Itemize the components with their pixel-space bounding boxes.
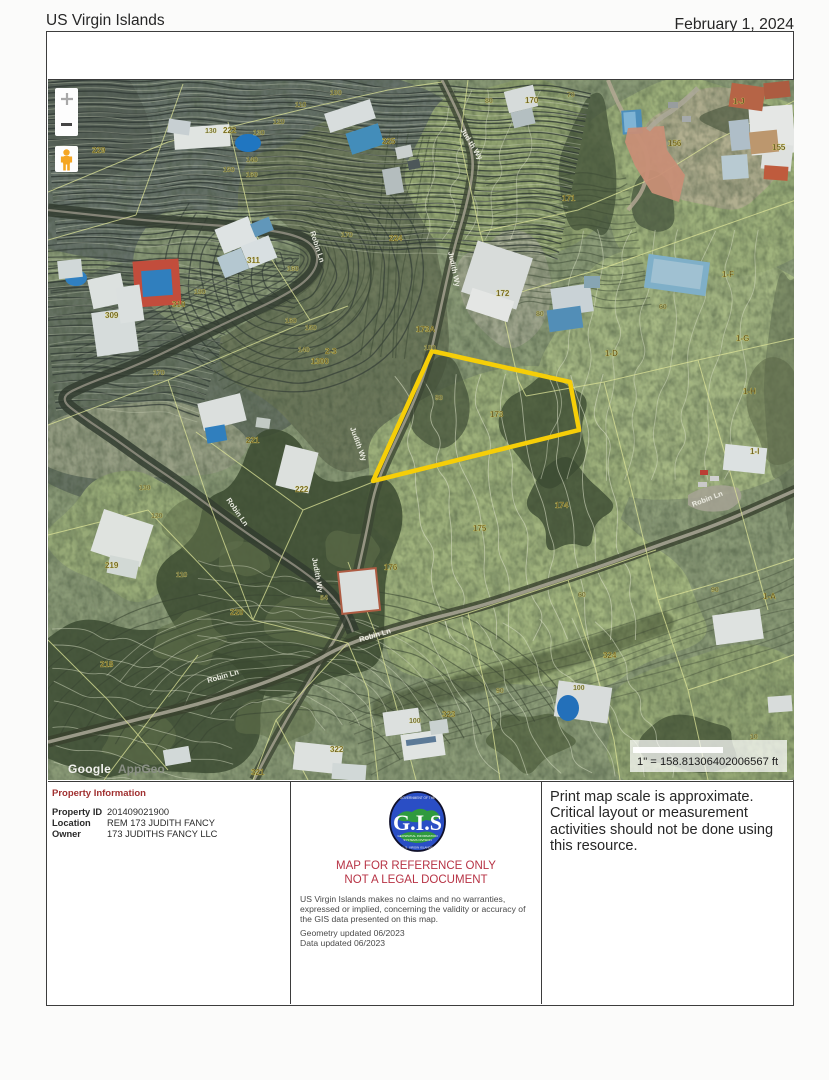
svg-text:172: 172 bbox=[496, 289, 510, 298]
svg-text:1-A: 1-A bbox=[763, 592, 776, 601]
svg-text:225: 225 bbox=[382, 137, 396, 146]
svg-text:173A: 173A bbox=[416, 325, 435, 334]
svg-text:321: 321 bbox=[251, 768, 265, 777]
svg-text:1-H: 1-H bbox=[743, 387, 756, 396]
svg-text:1-J: 1-J bbox=[733, 97, 745, 106]
svg-text:1-F: 1-F bbox=[722, 270, 734, 279]
svg-text:218: 218 bbox=[100, 660, 114, 669]
svg-text:1-D: 1-D bbox=[605, 349, 618, 358]
svg-text:G.I.S: G.I.S bbox=[393, 810, 442, 835]
svg-text:155: 155 bbox=[772, 143, 786, 152]
svg-text:130: 130 bbox=[205, 128, 217, 135]
svg-text:2-3: 2-3 bbox=[325, 347, 337, 356]
svg-text:323: 323 bbox=[442, 710, 456, 719]
svg-text:220: 220 bbox=[230, 608, 244, 617]
svg-text:140: 140 bbox=[246, 157, 258, 164]
svg-text:70: 70 bbox=[567, 92, 575, 99]
svg-text:64: 64 bbox=[320, 595, 328, 602]
svg-text:219: 219 bbox=[105, 561, 119, 570]
svg-text:229: 229 bbox=[92, 146, 106, 155]
svg-text:1-G: 1-G bbox=[736, 334, 749, 343]
svg-text:60: 60 bbox=[659, 304, 667, 311]
svg-text:100: 100 bbox=[330, 90, 342, 97]
svg-text:100: 100 bbox=[573, 685, 585, 692]
svg-text:150: 150 bbox=[223, 167, 235, 174]
svg-text:170: 170 bbox=[341, 232, 353, 239]
svg-text:90: 90 bbox=[711, 587, 719, 594]
svg-text:1-I: 1-I bbox=[750, 447, 759, 456]
svg-text:130: 130 bbox=[253, 130, 265, 137]
svg-text:130: 130 bbox=[139, 485, 151, 492]
svg-text:60: 60 bbox=[578, 592, 586, 599]
svg-text:310: 310 bbox=[172, 300, 186, 309]
svg-text:10: 10 bbox=[750, 734, 758, 741]
svg-text:150: 150 bbox=[305, 325, 317, 332]
svg-text:171: 171 bbox=[562, 194, 576, 203]
svg-text:140: 140 bbox=[298, 347, 310, 354]
svg-text:1" = 158.81306402006567 ft: 1" = 158.81306402006567 ft bbox=[637, 756, 779, 768]
svg-text:100: 100 bbox=[424, 345, 436, 352]
svg-text:SYSTEMS DIVISION: SYSTEMS DIVISION bbox=[403, 838, 431, 842]
svg-text:224: 224 bbox=[389, 234, 403, 243]
svg-text:U.S. VIRGIN ISLANDS: U.S. VIRGIN ISLANDS bbox=[402, 846, 433, 850]
svg-text:160: 160 bbox=[287, 266, 299, 273]
svg-text:309: 309 bbox=[105, 311, 119, 320]
svg-text:110: 110 bbox=[176, 572, 187, 579]
svg-text:110: 110 bbox=[295, 102, 306, 109]
svg-text:90: 90 bbox=[496, 688, 504, 695]
svg-text:AppGeo: AppGeo bbox=[118, 762, 165, 776]
svg-text:190: 190 bbox=[194, 289, 206, 296]
svg-text:GOVERNMENT OF THE: GOVERNMENT OF THE bbox=[400, 796, 435, 800]
svg-text:221: 221 bbox=[246, 436, 260, 445]
svg-text:120: 120 bbox=[151, 513, 163, 520]
svg-text:160: 160 bbox=[285, 318, 297, 325]
svg-text:90: 90 bbox=[435, 395, 443, 402]
svg-text:222: 222 bbox=[223, 126, 237, 135]
svg-text:222: 222 bbox=[295, 485, 309, 494]
svg-text:Google: Google bbox=[68, 762, 111, 776]
svg-text:100: 100 bbox=[409, 718, 421, 725]
svg-text:120: 120 bbox=[273, 119, 285, 126]
svg-text:311: 311 bbox=[247, 256, 260, 265]
svg-text:322: 322 bbox=[330, 745, 344, 754]
svg-text:170: 170 bbox=[153, 370, 165, 377]
svg-text:170: 170 bbox=[525, 96, 539, 105]
svg-text:1300: 1300 bbox=[311, 357, 329, 366]
svg-text:160: 160 bbox=[246, 172, 258, 179]
svg-text:173: 173 bbox=[490, 410, 504, 419]
svg-text:175: 175 bbox=[473, 524, 487, 533]
svg-text:174: 174 bbox=[555, 501, 569, 510]
svg-text:156: 156 bbox=[668, 139, 682, 148]
svg-text:80: 80 bbox=[536, 311, 544, 318]
svg-text:176: 176 bbox=[384, 563, 398, 572]
svg-text:324: 324 bbox=[603, 651, 617, 660]
svg-text:80: 80 bbox=[485, 98, 493, 105]
